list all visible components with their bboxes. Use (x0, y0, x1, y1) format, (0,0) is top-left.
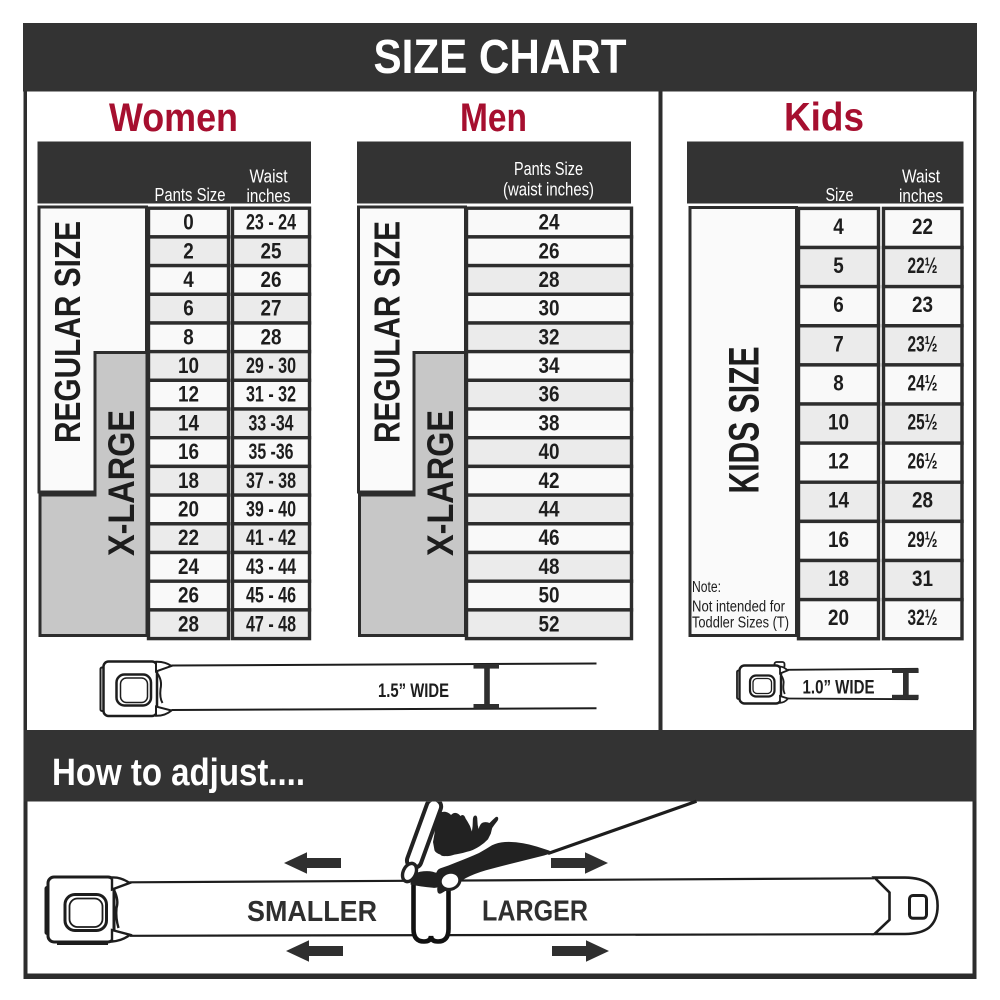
svg-text:1.0” WIDE: 1.0” WIDE (803, 677, 875, 699)
svg-text:46: 46 (539, 525, 560, 550)
svg-text:(waist inches): (waist inches) (503, 179, 594, 200)
svg-text:4: 4 (833, 214, 844, 239)
svg-text:Waist: Waist (902, 166, 940, 187)
svg-text:28: 28 (912, 488, 933, 513)
svg-text:Waist: Waist (250, 166, 288, 187)
svg-text:40: 40 (539, 439, 560, 464)
svg-text:7: 7 (833, 331, 844, 356)
svg-text:20: 20 (178, 497, 199, 522)
svg-text:18: 18 (178, 468, 199, 493)
svg-text:8: 8 (833, 370, 844, 395)
svg-text:48: 48 (539, 554, 560, 579)
svg-text:39 - 40: 39 - 40 (246, 497, 296, 522)
svg-text:22½: 22½ (908, 253, 938, 278)
svg-text:22: 22 (912, 214, 933, 239)
svg-text:29½: 29½ (908, 527, 938, 552)
svg-text:35 -36: 35 -36 (249, 439, 294, 464)
svg-text:45 - 46: 45 - 46 (246, 583, 296, 608)
svg-text:REGULAR SIZE: REGULAR SIZE (367, 221, 408, 443)
svg-text:Women: Women (109, 96, 238, 140)
svg-text:Pants Size: Pants Size (514, 158, 583, 179)
svg-text:41 - 42: 41 - 42 (246, 525, 296, 550)
svg-text:Pants Size: Pants Size (155, 184, 226, 205)
svg-text:23: 23 (912, 292, 933, 317)
svg-text:X-LARGE: X-LARGE (101, 410, 142, 556)
svg-text:4: 4 (183, 267, 194, 292)
svg-text:16: 16 (178, 439, 199, 464)
svg-text:24: 24 (178, 554, 200, 579)
svg-text:23½: 23½ (908, 331, 938, 356)
svg-text:32: 32 (539, 324, 560, 349)
svg-text:1.5” WIDE: 1.5” WIDE (378, 680, 449, 702)
svg-text:SMALLER: SMALLER (247, 896, 377, 928)
svg-text:42: 42 (539, 468, 560, 493)
svg-text:8: 8 (183, 324, 194, 349)
svg-text:52: 52 (539, 611, 560, 636)
svg-text:10: 10 (178, 353, 199, 378)
svg-text:33 -34: 33 -34 (249, 410, 295, 435)
svg-text:Kids: Kids (784, 96, 864, 140)
svg-text:27: 27 (261, 296, 282, 321)
svg-text:43 - 44: 43 - 44 (246, 554, 297, 579)
svg-text:REGULAR SIZE: REGULAR SIZE (47, 221, 88, 443)
svg-text:12: 12 (178, 382, 199, 407)
svg-text:Size: Size (826, 184, 854, 205)
svg-text:SIZE CHART: SIZE CHART (374, 30, 627, 84)
svg-text:Note:: Note: (692, 579, 721, 596)
svg-text:14: 14 (828, 488, 850, 513)
svg-text:6: 6 (183, 296, 194, 321)
svg-text:10: 10 (828, 410, 849, 435)
svg-text:X-LARGE: X-LARGE (420, 410, 461, 556)
svg-text:KIDS SIZE: KIDS SIZE (721, 347, 769, 494)
svg-text:26: 26 (178, 583, 199, 608)
svg-text:36: 36 (539, 382, 560, 407)
svg-text:50: 50 (539, 583, 560, 608)
svg-text:6: 6 (833, 292, 844, 317)
svg-text:Not intended for: Not intended for (692, 599, 785, 616)
svg-text:22: 22 (178, 525, 199, 550)
svg-text:29 - 30: 29 - 30 (246, 353, 296, 378)
svg-text:LARGER: LARGER (482, 896, 588, 928)
svg-text:31: 31 (912, 566, 933, 591)
svg-text:2: 2 (183, 238, 194, 263)
svg-text:0: 0 (183, 210, 194, 235)
svg-text:inches: inches (899, 185, 943, 206)
svg-text:28: 28 (261, 324, 282, 349)
svg-text:32½: 32½ (908, 605, 938, 630)
svg-text:23 - 24: 23 - 24 (246, 210, 297, 235)
svg-text:12: 12 (828, 449, 849, 474)
svg-text:44: 44 (539, 497, 561, 522)
svg-text:24: 24 (539, 210, 561, 235)
svg-text:25: 25 (261, 238, 282, 263)
svg-text:14: 14 (178, 410, 200, 435)
svg-text:Men: Men (460, 96, 527, 140)
svg-text:How to adjust....: How to adjust.... (52, 752, 305, 794)
svg-text:25½: 25½ (908, 410, 938, 435)
svg-text:47 - 48: 47 - 48 (246, 611, 296, 636)
svg-text:24½: 24½ (908, 370, 938, 395)
svg-text:26: 26 (539, 238, 560, 263)
svg-text:37 - 38: 37 - 38 (246, 468, 296, 493)
svg-text:5: 5 (833, 253, 844, 278)
svg-text:30: 30 (539, 296, 560, 321)
svg-text:inches: inches (247, 185, 291, 206)
svg-text:26½: 26½ (908, 449, 938, 474)
svg-text:38: 38 (539, 410, 560, 435)
svg-text:20: 20 (828, 605, 849, 630)
svg-text:Toddler Sizes (T): Toddler Sizes (T) (692, 615, 789, 632)
svg-text:31 - 32: 31 - 32 (246, 382, 296, 407)
svg-text:16: 16 (828, 527, 849, 552)
svg-text:28: 28 (178, 611, 199, 636)
svg-text:26: 26 (261, 267, 282, 292)
svg-text:34: 34 (539, 353, 561, 378)
svg-text:28: 28 (539, 267, 560, 292)
svg-text:18: 18 (828, 566, 849, 591)
